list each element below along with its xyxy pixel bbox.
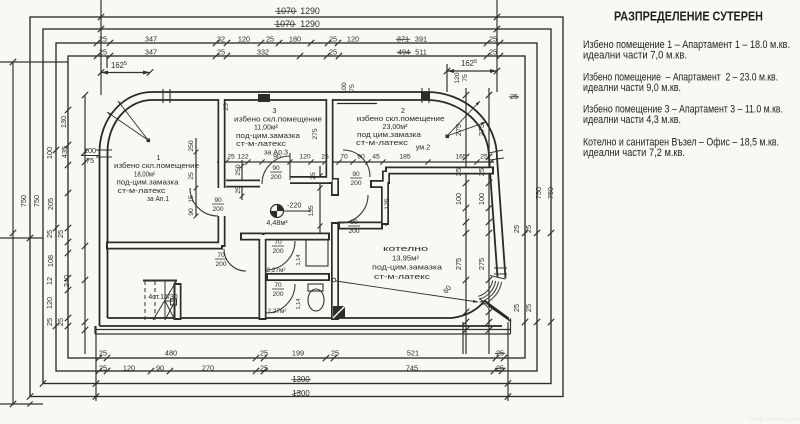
svg-text:1,14: 1,14 — [296, 298, 302, 310]
svg-text:200: 200 — [272, 291, 283, 298]
svg-text:идеални части 4,3 м.кв.: идеални части 4,3 м.кв. — [583, 114, 681, 126]
svg-text:275: 275 — [454, 124, 463, 136]
svg-text:ум.2: ум.2 — [416, 143, 430, 152]
svg-text:ст-м-латекс: ст-м-латекс — [356, 138, 409, 147]
svg-text:25: 25 — [310, 172, 317, 180]
svg-text:70: 70 — [217, 252, 225, 259]
svg-text:275: 275 — [477, 124, 486, 136]
svg-text:347: 347 — [145, 35, 157, 44]
svg-text:25: 25 — [331, 349, 339, 358]
svg-text:РАЗПРЕДЕЛЕНИЕ СУТЕРЕН: РАЗПРЕДЕЛЕНИЕ СУТЕРЕН — [614, 9, 763, 24]
svg-text:12: 12 — [45, 277, 54, 285]
svg-text:270: 270 — [202, 364, 214, 373]
svg-text:70: 70 — [274, 282, 282, 289]
svg-text:за Ап.3: за Ап.3 — [264, 148, 288, 157]
svg-text:25: 25 — [524, 304, 533, 312]
svg-text:25: 25 — [260, 349, 268, 358]
svg-text:100: 100 — [477, 193, 486, 205]
svg-text:25: 25 — [188, 172, 195, 180]
svg-text:122: 122 — [237, 154, 249, 161]
svg-text:200: 200 — [348, 228, 359, 235]
svg-text:2,27м²: 2,27м² — [268, 308, 287, 315]
svg-text:25: 25 — [266, 35, 274, 44]
svg-text:750: 750 — [19, 195, 28, 207]
svg-text:25: 25 — [480, 154, 488, 161]
svg-text:200: 200 — [212, 206, 223, 213]
svg-text:13,95м²: 13,95м² — [392, 253, 420, 262]
svg-text:25: 25 — [524, 225, 533, 233]
svg-text:15: 15 — [188, 195, 195, 203]
svg-text:2,27м²: 2,27м² — [267, 267, 286, 274]
svg-text:imoti–varna–com•net: imoti–varna–com•net — [748, 416, 800, 423]
svg-text:275: 275 — [454, 258, 463, 270]
svg-text:90: 90 — [214, 197, 222, 204]
svg-text:75: 75 — [86, 156, 94, 165]
svg-text:25: 25 — [99, 364, 107, 373]
svg-text:750: 750 — [534, 187, 543, 199]
svg-text:25: 25 — [56, 230, 65, 238]
svg-text:5: 5 — [124, 61, 127, 67]
svg-text:180: 180 — [289, 35, 301, 44]
svg-text:25: 25 — [512, 225, 521, 233]
svg-text:745: 745 — [406, 364, 418, 373]
svg-text:90: 90 — [188, 208, 195, 216]
svg-text:25: 25 — [45, 318, 54, 326]
svg-text:200: 200 — [270, 174, 281, 181]
svg-text:5: 5 — [474, 59, 477, 65]
svg-text:90: 90 — [272, 165, 280, 172]
svg-text:за Ап.1: за Ап.1 — [147, 194, 169, 203]
svg-text:25: 25 — [235, 186, 242, 194]
svg-text:идеални части 7,2 м.кв.: идеални части 7,2 м.кв. — [583, 147, 685, 159]
svg-text:25: 25 — [489, 48, 497, 57]
svg-text:275: 275 — [312, 128, 319, 140]
svg-text:480: 480 — [165, 349, 177, 358]
svg-text:избено скл.помещение: избено скл.помещение — [234, 114, 322, 123]
svg-text:120: 120 — [238, 35, 250, 44]
svg-text:идеални части 9,0 м.кв.: идеални части 9,0 м.кв. — [583, 82, 681, 94]
svg-text:25: 25 — [227, 154, 235, 161]
svg-text:25: 25 — [477, 168, 486, 176]
svg-text:25: 25 — [489, 35, 497, 44]
svg-text:108: 108 — [46, 255, 55, 267]
svg-text:435: 435 — [60, 146, 69, 158]
svg-text:4ст.16/30: 4ст.16/30 — [148, 294, 177, 301]
svg-text:избено скл.помещение: избено скл.помещение — [114, 161, 199, 170]
svg-text:25: 25 — [321, 154, 329, 161]
svg-text:120: 120 — [123, 364, 135, 373]
svg-text:45: 45 — [372, 154, 380, 161]
svg-text:котелно: котелно — [383, 244, 428, 253]
svg-text:332: 332 — [257, 48, 269, 57]
svg-text:25: 25 — [329, 48, 337, 57]
svg-text:200: 200 — [272, 248, 283, 255]
svg-text:90: 90 — [357, 154, 365, 161]
svg-text:60: 60 — [441, 283, 453, 295]
svg-text:100: 100 — [454, 193, 463, 205]
svg-text:1290: 1290 — [300, 19, 320, 29]
svg-text:25: 25 — [454, 168, 463, 176]
svg-text:120: 120 — [347, 35, 359, 44]
svg-text:100: 100 — [45, 147, 54, 159]
svg-text:205: 205 — [46, 198, 55, 210]
svg-text:391: 391 — [415, 35, 427, 44]
svg-text:70: 70 — [340, 154, 348, 161]
svg-text:1290: 1290 — [300, 6, 320, 16]
svg-text:750: 750 — [546, 187, 555, 199]
svg-text:4,48м²: 4,48м² — [266, 218, 288, 227]
svg-text:25: 25 — [329, 35, 337, 44]
svg-text:под-цим.замазка: под-цим.замазка — [372, 263, 442, 272]
svg-text:32: 32 — [217, 35, 225, 44]
svg-text:130: 130 — [59, 116, 68, 128]
svg-text:135: 135 — [308, 205, 315, 217]
svg-text:25: 25 — [99, 35, 107, 44]
svg-text:521: 521 — [407, 349, 419, 358]
svg-text:90: 90 — [156, 364, 164, 373]
svg-text:185: 185 — [399, 154, 411, 161]
svg-text:240: 240 — [62, 275, 71, 287]
svg-text:ст-м-латекс: ст-м-латекс — [374, 272, 431, 281]
svg-text:100: 100 — [84, 146, 96, 155]
svg-text:200: 200 — [215, 261, 226, 268]
svg-text:25: 25 — [99, 48, 107, 57]
svg-text:90: 90 — [350, 219, 358, 226]
svg-text:75: 75 — [349, 84, 356, 92]
svg-text:25: 25 — [512, 304, 521, 312]
svg-text:250: 250 — [188, 140, 195, 152]
svg-text:-220: -220 — [287, 201, 301, 210]
svg-text:25: 25 — [99, 349, 107, 358]
svg-text:120: 120 — [299, 154, 311, 161]
svg-text:25: 25 — [260, 364, 268, 373]
svg-text:120: 120 — [45, 297, 54, 309]
svg-text:1,14: 1,14 — [296, 254, 302, 266]
svg-text:100: 100 — [341, 82, 348, 94]
svg-text:165: 165 — [455, 154, 467, 161]
svg-text:25: 25 — [45, 230, 54, 238]
svg-text:25: 25 — [223, 103, 230, 111]
svg-text:275: 275 — [477, 258, 486, 270]
svg-text:162: 162 — [111, 61, 124, 70]
svg-text:идеални части 7,0 м.кв.: идеални части 7,0 м.кв. — [583, 50, 687, 62]
svg-text:200: 200 — [350, 180, 361, 187]
svg-text:25: 25 — [217, 48, 225, 57]
svg-text:25: 25 — [56, 318, 65, 326]
svg-text:120: 120 — [454, 72, 461, 84]
svg-text:250: 250 — [235, 164, 242, 176]
svg-text:90: 90 — [352, 171, 360, 178]
svg-text:162: 162 — [461, 59, 474, 68]
svg-text:511: 511 — [415, 48, 427, 57]
svg-text:199: 199 — [292, 349, 304, 358]
svg-text:125: 125 — [384, 198, 391, 210]
svg-text:750: 750 — [32, 195, 41, 207]
svg-text:75: 75 — [462, 74, 469, 82]
svg-text:70: 70 — [274, 239, 282, 246]
svg-text:347: 347 — [145, 48, 157, 57]
